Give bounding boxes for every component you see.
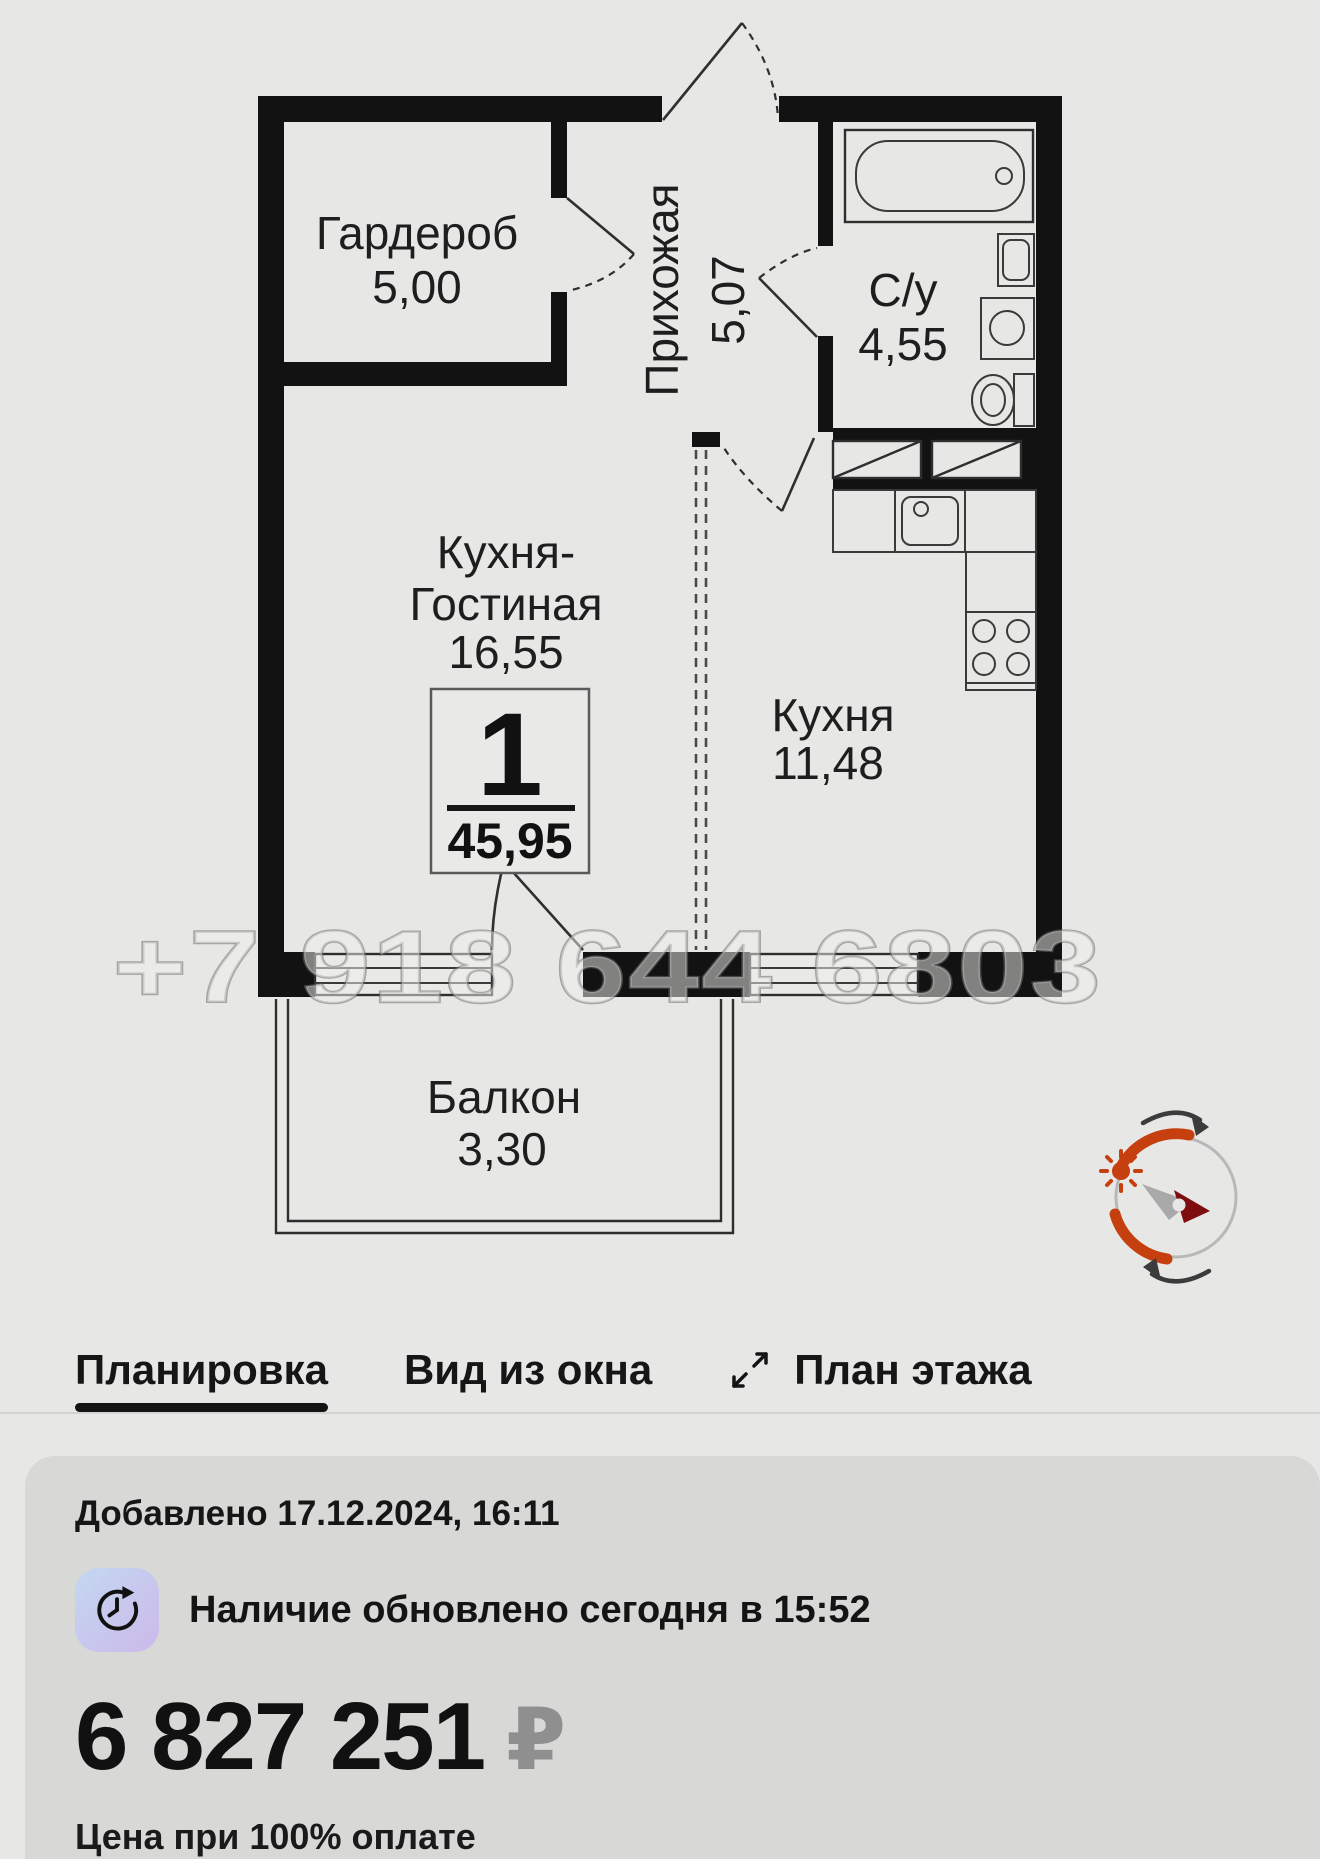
zone-separator-dashed-line: [696, 450, 706, 950]
room-label-kitchen: Кухня: [771, 689, 894, 741]
bathroom-door-icon: [759, 248, 817, 337]
active-tab-underline: [75, 1403, 328, 1412]
tab-layout-label: Планировка: [75, 1346, 328, 1394]
compass-needle-icon: [1142, 1184, 1210, 1223]
media-tabs: Планировка Вид из окна План этажа: [0, 1330, 1320, 1412]
tab-floor-plan-label: План этажа: [794, 1346, 1031, 1394]
tab-window-view[interactable]: Вид из окна: [404, 1330, 652, 1410]
wardrobe-door-icon: [567, 198, 634, 291]
availability-text: Наличие обновлено сегодня в 15:52: [189, 1589, 871, 1632]
compass-icon: [1101, 1113, 1236, 1282]
availability-row: Наличие обновлено сегодня в 15:52: [75, 1568, 1320, 1652]
total-area: 45,95: [447, 813, 572, 869]
kitchen-door-icon: [724, 438, 814, 511]
washing-machine-icon: [981, 298, 1034, 359]
room-label-kitchen-living-1: Кухня-: [437, 526, 575, 578]
room-area-balcony: 3,30: [457, 1123, 547, 1175]
room-area-kitchen-living: 16,55: [448, 626, 563, 678]
bath-sink-icon: [998, 234, 1034, 286]
tab-window-view-label: Вид из окна: [404, 1346, 652, 1394]
room-label-hallway: Прихожая: [636, 183, 688, 396]
tab-layout[interactable]: Планировка: [75, 1330, 328, 1410]
bathtub-icon: [845, 130, 1033, 222]
entrance-door-icon: [663, 23, 778, 120]
room-area-wardrobe: 5,00: [372, 261, 462, 313]
added-date-text: Добавлено 17.12.2024, 16:11: [75, 1494, 1320, 1534]
room-label-bathroom: С/у: [869, 264, 938, 316]
tabs-divider: [0, 1412, 1320, 1414]
clock-history-icon: [75, 1568, 159, 1652]
room-area-bathroom: 4,55: [858, 318, 948, 370]
price-value: 6 827 251: [75, 1682, 484, 1792]
listing-info-card: Добавлено 17.12.2024, 16:11 Наличие обно…: [25, 1456, 1320, 1859]
toilet-icon: [972, 374, 1034, 426]
expand-arrows-icon: [728, 1348, 772, 1392]
price-note: Цена при 100% оплате: [75, 1816, 1320, 1858]
room-area-kitchen: 11,48: [772, 737, 884, 789]
kitchen-sink-icon: [902, 497, 958, 545]
stove-icon: [966, 612, 1036, 683]
rooms-count: 1: [477, 689, 543, 821]
room-label-wardrobe: Гардероб: [316, 207, 518, 259]
kitchen-counter-icon: [833, 490, 1036, 690]
room-label-kitchen-living-2: Гостиная: [409, 578, 602, 630]
sun-icon: [1101, 1151, 1141, 1191]
floor-plan-image: Гардероб 5,00 Прихожая 5,07 С/у 4,55 Кух…: [0, 0, 1320, 1330]
price-row: 6 827 251 ₽: [75, 1682, 1320, 1792]
room-area-hallway: 5,07: [702, 255, 754, 345]
ruble-sign: ₽: [506, 1690, 566, 1790]
tab-floor-plan[interactable]: План этажа: [728, 1330, 1031, 1410]
unit-summary-badge: 1 45,95: [431, 689, 589, 873]
listing-screen: Гардероб 5,00 Прихожая 5,07 С/у 4,55 Кух…: [0, 0, 1320, 1859]
phone-watermark: +7 918 644 6803: [113, 910, 1103, 1024]
room-label-balcony: Балкон: [427, 1071, 581, 1123]
